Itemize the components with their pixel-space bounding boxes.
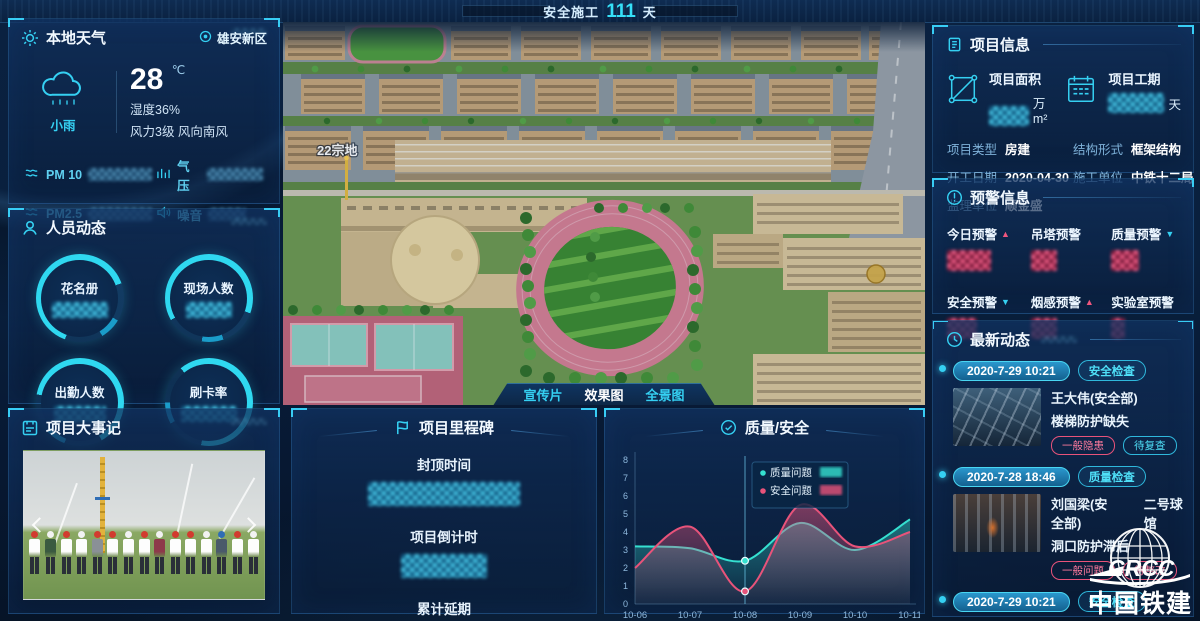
person-figure [200,531,214,577]
project-stat-label: 项目面积 [989,69,1058,88]
trend-down-icon: ▼ [1165,229,1174,239]
milestone-item: 累计延期 [417,598,471,621]
news-entry-text: 刘国梁(安全部)二号球馆洞口防护滞后一般问题待整改 [1051,494,1185,580]
news-tags: 一般问题待整改 [1051,561,1185,580]
warning-label: 质量预警▼ [1111,224,1179,243]
project-stats: 项目面积万m²项目工期天 [933,59,1193,128]
project-field-value: 框架结构 [1131,139,1181,158]
news-entries: 2020-7-29 10:21安全检查王大伟(安全部)楼梯防护缺失一般隐患待复查… [933,354,1193,617]
svg-text:质量问题: 质量问题 [770,466,812,479]
panel-project-info: 项目信息 项目面积万m²项目工期天 项目类型房建结构形式框架结构开工日期2020… [932,25,1194,173]
person-figure [28,531,42,577]
timeline-dot [939,596,946,603]
panel-personnel: 人员动态 花名册现场人数出勤人数刷卡率 [8,208,280,404]
quality-header: 质量/安全 [605,409,924,442]
safety-label: 安全施工 [543,2,599,21]
svg-text:3: 3 [623,545,628,555]
panel-warnings: 预警信息 今日预警▲吊塔预警质量预警▼安全预警▼烟感预警▲实验室预警 [932,178,1194,314]
events-header: 项目大事记 [9,409,279,442]
warning-label: 吊塔预警 [1031,224,1105,243]
person-figure [75,531,89,577]
location-pin-icon [199,30,212,46]
personnel-ring-inner: 现场人数 [170,260,247,337]
quality-title: 质量/安全 [745,417,809,438]
personnel-stat-label: 花名册 [61,278,99,297]
svg-text:0: 0 [623,599,628,609]
blurred-value [947,250,991,271]
project-stat-value: 万m² [989,93,1058,126]
project-field-label: 项目类型 [947,139,997,158]
milestone-title: 项目里程碑 [419,417,494,438]
svg-text:10-07: 10-07 [678,610,702,621]
news-entry-text: 王大伟(安全部)楼梯防护缺失一般隐患待复查 [1051,388,1177,455]
svg-text:8: 8 [623,455,628,465]
tab-全景图[interactable]: 全景图 [646,385,685,404]
warning-label: 安全预警▼ [947,292,1025,311]
personnel-ring: 现场人数 [165,254,253,342]
panel-local-weather: 本地天气 雄安新区 小雨 28 ℃ 湿度36% 风力3级 风向南风 PM 10气… [8,18,280,204]
personnel-stat-label: 现场人数 [183,278,233,297]
blurred-value [1031,250,1057,271]
project-field: 项目类型房建 [947,139,1069,158]
news-entry[interactable]: 2020-7-28 18:46质量检查刘国梁(安全部)二号球馆洞口防护滞后一般问… [953,466,1185,580]
tab-效果图[interactable]: 效果图 [584,385,623,404]
warnings-header: 预警信息 [933,179,1193,212]
milestone-label: 累计延期 [417,598,471,618]
trend-up-icon: ▲ [1085,297,1094,307]
person-figure [168,531,182,577]
pressure-icon [156,167,171,183]
milestone-header: 项目里程碑 [292,409,596,442]
news-entry-body: 王大伟(安全部)楼梯防护缺失一般隐患待复查 [953,388,1185,455]
project-stat: 项目工期天 [1062,69,1181,126]
project-field-label: 结构形式 [1073,139,1123,158]
humidity: 湿度36% [130,99,228,118]
project-stat-value: 天 [1108,93,1181,113]
header-blur-mark [1041,336,1077,343]
region-button[interactable]: 雄安新区 [199,28,267,47]
blurred-value [52,302,108,318]
person-icon [21,219,39,237]
svg-text:6: 6 [623,491,628,501]
warning-stat: 今日预警▲ [947,224,1025,276]
news-date-pill: 2020-7-29 10:21 [953,361,1070,381]
news-person-name: 王大伟(安全部) [1051,388,1138,407]
area-icon [945,69,981,109]
news-header: 最新动态 [933,321,1193,354]
group-photo-people [28,531,260,577]
project-stat-label: 项目工期 [1108,69,1181,88]
personnel-stat-label: 出勤人数 [54,382,104,401]
warning-label: 烟感预警▲ [1031,292,1105,311]
quality-safety-chart: 01234567810-0610-0710-0810-0910-1010-11质… [605,442,924,621]
blurred-value [989,106,1029,126]
news-tag: 一般隐患 [1051,436,1115,455]
event-photo-carousel[interactable] [23,450,265,600]
weather-condition: 小雨 [23,69,103,134]
temperature-unit: ℃ [172,63,185,77]
personnel-stat-label: 刷卡率 [190,382,228,401]
header-line [1043,197,1181,198]
dashboard: 安全施工 111 天 [0,0,1200,621]
region-label: 雄安新区 [217,28,267,47]
condition-label: 小雨 [23,115,103,134]
project-info-header: 项目信息 [933,26,1193,59]
weather-readings: 28 ℃ 湿度36% 风力3级 风向南风 [130,64,228,140]
panel-project-events: 项目大事记 [8,408,280,614]
news-entry[interactable]: 2020-7-29 10:21安全检查王大伟(安全部)多功能体育馆楼梯防护缺失一… [953,591,1185,617]
view-mode-tabs: 宣传片效果图全景图 [493,383,714,405]
svg-text:安全问题: 安全问题 [770,484,812,497]
blurred-value [401,554,487,578]
timeline-dot [939,365,946,372]
project-stat-body: 项目面积万m² [989,69,1058,126]
weather-metric: PM 10 [25,156,152,194]
person-figure [246,531,260,577]
header-line [1043,44,1181,45]
news-entry-top: 王大伟(安全部) [1051,388,1177,407]
warning-label: 实验室预警 [1111,292,1179,311]
events-title: 项目大事记 [46,417,121,438]
news-tags: 一般隐患待复查 [1051,436,1177,455]
person-figure [137,531,151,577]
rain-cloud-icon [37,96,89,113]
warnings-title: 预警信息 [970,187,1030,208]
news-place: 二号球馆 [1144,494,1185,532]
milestone-label: 项目倒计时 [401,526,487,546]
news-category-pill: 质量检查 [1078,466,1146,487]
person-figure [90,531,104,577]
header-blur-mark [231,418,267,425]
news-entry[interactable]: 2020-7-29 10:21安全检查王大伟(安全部)楼梯防护缺失一般隐患待复查 [953,360,1185,455]
line-chart: 01234567810-0610-0710-0810-0910-1010-11质… [609,446,920,621]
project-stat-unit: 天 [1168,94,1181,113]
news-category-pill: 安全检查 [1078,591,1146,612]
person-figure [215,531,229,577]
news-entry-meta: 2020-7-29 10:21安全检查 [953,591,1185,612]
svg-text:10-10: 10-10 [843,610,867,621]
news-description: 楼梯防护缺失 [1051,411,1177,430]
wind: 风力3级 风向南风 [130,121,228,140]
page-title: 安全施工 111 天 [0,0,1200,22]
milestone-label: 封顶时间 [368,454,520,474]
project-stat-body: 项目工期天 [1108,69,1181,113]
blurred-value [1111,250,1139,271]
sun-icon [21,29,39,47]
site-3d-view[interactable]: 22宗地 宣传片效果图全景图 [283,22,925,405]
news-description: 洞口防护滞后 [1051,536,1185,555]
personnel-header: 人员动态 [9,209,279,242]
blurred-value [186,302,232,318]
site-render: 22宗地 [283,22,925,405]
trend-down-icon: ▼ [1001,297,1010,307]
header-line [1090,339,1181,340]
temperature-value: 28 [130,63,163,96]
panel-quality-safety: 质量/安全 01234567810-0610-0710-0810-0910-10… [604,408,925,614]
svg-text:1: 1 [623,581,628,591]
news-person-name: 刘国梁(安全部) [1051,494,1120,532]
safety-days: 111 [606,2,636,21]
trend-up-icon: ▲ [1001,229,1010,239]
blurred-value [88,168,152,181]
weather-metric: 气压 [156,156,263,194]
project-field-value: 房建 [1005,139,1030,158]
blurred-value [368,482,520,506]
timeline-dot [939,471,946,478]
project-info-title: 项目信息 [970,34,1030,55]
weather-title: 本地天气 [46,27,106,48]
person-figure [44,531,58,577]
clock-icon [945,331,963,349]
news-tag: 待整改 [1123,561,1177,580]
document-icon [945,36,963,54]
person-figure [184,531,198,577]
weather-metric-label: PM 10 [46,168,82,182]
svg-text:7: 7 [623,473,628,483]
svg-text:2: 2 [623,563,628,573]
news-entry-top: 刘国梁(安全部)二号球馆 [1051,494,1185,532]
news-category-pill: 安全检查 [1078,360,1146,381]
news-entry-body: 刘国梁(安全部)二号球馆洞口防护滞后一般问题待整改 [953,494,1185,580]
flagpole-decoration [177,464,193,533]
weather-metric-label: 气压 [177,156,201,194]
project-stat: 项目面积万m² [945,69,1058,126]
alert-bell-icon [945,189,963,207]
person-figure [106,531,120,577]
news-date-pill: 2020-7-29 10:21 [953,592,1070,612]
news-photo [953,388,1041,446]
milestone-item: 封顶时间 [368,454,520,511]
person-figure [153,531,167,577]
flag-icon [394,419,412,437]
warning-label: 今日预警▲ [947,224,1025,243]
svg-text:10-09: 10-09 [788,610,812,621]
header-blur-mark [231,218,267,225]
memo-icon [21,419,39,437]
pm-icon [25,167,40,183]
warning-stat: 质量预警▼ [1111,224,1179,276]
calendar-icon [1062,69,1100,109]
project-stat-unit: 万m² [1033,93,1059,126]
divider [116,71,117,133]
person-figure [122,531,136,577]
milestone-item: 项目倒计时 [401,526,487,583]
weather-current: 小雨 28 ℃ 湿度36% 风力3级 风向南风 [9,52,279,144]
safety-days-unit: 天 [643,2,657,21]
panel-milestone: 项目里程碑 封顶时间项目倒计时累计延期 [291,408,597,614]
tab-宣传片[interactable]: 宣传片 [523,385,562,404]
personnel-title: 人员动态 [46,217,106,238]
shield-check-icon [720,419,738,437]
news-title: 最新动态 [970,329,1030,350]
blurred-value [207,168,263,181]
milestone-items: 封顶时间项目倒计时累计延期 [292,442,596,621]
news-date-pill: 2020-7-28 18:46 [953,467,1070,487]
news-tag: 一般问题 [1051,561,1115,580]
news-entry-meta: 2020-7-28 18:46质量检查 [953,466,1185,487]
svg-text:4: 4 [623,527,628,537]
svg-text:10-06: 10-06 [623,610,647,621]
svg-text:10-08: 10-08 [733,610,757,621]
person-figure [231,531,245,577]
svg-text:5: 5 [623,509,628,519]
person-figure [59,531,73,577]
news-photo [953,494,1041,552]
personnel-ring: 花名册 [36,254,124,342]
blurred-value [1108,93,1164,113]
warning-stat: 吊塔预警 [1031,224,1105,276]
panel-latest-news: 最新动态 2020-7-29 10:21安全检查王大伟(安全部)楼梯防护缺失一般… [932,320,1194,617]
svg-text:10-11: 10-11 [898,610,920,621]
project-field: 结构形式框架结构 [1073,139,1194,158]
news-entry-meta: 2020-7-29 10:21安全检查 [953,360,1185,381]
news-tag: 待复查 [1123,436,1177,455]
personnel-ring-inner: 花名册 [41,260,118,337]
